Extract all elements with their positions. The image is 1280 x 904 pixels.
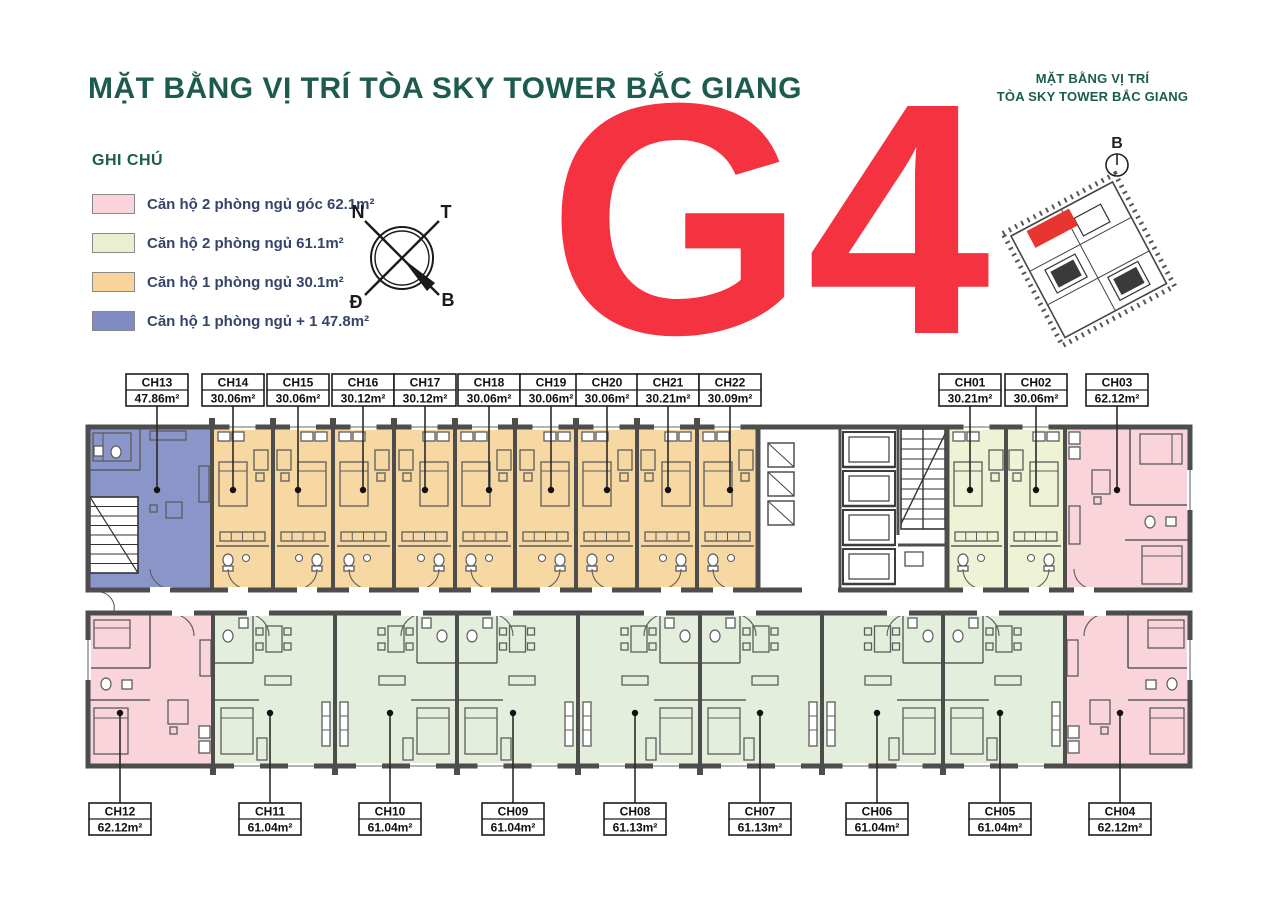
svg-text:CH07: CH07 xyxy=(745,805,776,819)
svg-text:61.04m²: 61.04m² xyxy=(978,821,1023,835)
svg-text:CH17: CH17 xyxy=(410,376,441,390)
svg-text:CH12: CH12 xyxy=(105,805,136,819)
minimap-compass-icon: B xyxy=(1106,135,1128,176)
svg-text:30.06m²: 30.06m² xyxy=(211,392,256,406)
svg-text:CH04: CH04 xyxy=(1105,805,1136,819)
svg-text:B: B xyxy=(1111,135,1123,152)
svg-text:CH10: CH10 xyxy=(375,805,406,819)
svg-text:62.12m²: 62.12m² xyxy=(1095,392,1140,406)
svg-text:B: B xyxy=(442,290,455,310)
swatch-orange xyxy=(92,272,135,292)
svg-text:N: N xyxy=(352,202,365,222)
minimap-title: MẶT BẰNG VỊ TRÍ TÒA SKY TOWER BẮC GIANG xyxy=(985,70,1200,106)
svg-text:CH18: CH18 xyxy=(474,376,505,390)
compass-icon: N T Đ B xyxy=(336,192,471,327)
swatch-blue xyxy=(92,311,135,331)
svg-text:62.12m²: 62.12m² xyxy=(98,821,143,835)
svg-text:61.13m²: 61.13m² xyxy=(738,821,783,835)
svg-text:47.86m²: 47.86m² xyxy=(135,392,180,406)
tower-code: G4 xyxy=(548,62,978,376)
svg-text:30.06m²: 30.06m² xyxy=(276,392,321,406)
svg-text:61.04m²: 61.04m² xyxy=(855,821,900,835)
svg-text:30.12m²: 30.12m² xyxy=(341,392,386,406)
swatch-pink xyxy=(92,194,135,214)
svg-text:61.04m²: 61.04m² xyxy=(491,821,536,835)
svg-text:30.06m²: 30.06m² xyxy=(1014,392,1059,406)
svg-text:CH03: CH03 xyxy=(1102,376,1133,390)
svg-text:T: T xyxy=(441,202,452,222)
svg-text:62.12m²: 62.12m² xyxy=(1098,821,1143,835)
svg-text:CH05: CH05 xyxy=(985,805,1016,819)
flyer-page: { "title": "MẶT BẰNG VỊ TRÍ TÒA SKY TOWE… xyxy=(0,0,1280,904)
svg-text:CH15: CH15 xyxy=(283,376,314,390)
svg-text:CH09: CH09 xyxy=(498,805,529,819)
svg-text:CH16: CH16 xyxy=(348,376,379,390)
floor-plan-graphics: CH13 47.86m² CH14 30.06m² CH15 30.06m² C… xyxy=(85,374,1193,835)
svg-text:CH13: CH13 xyxy=(142,376,173,390)
svg-text:61.13m²: 61.13m² xyxy=(613,821,658,835)
svg-text:30.12m²: 30.12m² xyxy=(403,392,448,406)
minimap: B xyxy=(965,118,1205,353)
svg-text:CH08: CH08 xyxy=(620,805,651,819)
svg-text:61.04m²: 61.04m² xyxy=(368,821,413,835)
svg-text:CH14: CH14 xyxy=(218,376,249,390)
svg-text:Đ: Đ xyxy=(350,292,363,312)
svg-text:CH02: CH02 xyxy=(1021,376,1052,390)
svg-text:CH11: CH11 xyxy=(255,805,285,819)
swatch-yellowgreen xyxy=(92,233,135,253)
svg-text:61.04m²: 61.04m² xyxy=(248,821,293,835)
svg-text:30.06m²: 30.06m² xyxy=(467,392,512,406)
svg-text:CH06: CH06 xyxy=(862,805,893,819)
legend-heading: GHI CHÚ xyxy=(92,152,422,170)
